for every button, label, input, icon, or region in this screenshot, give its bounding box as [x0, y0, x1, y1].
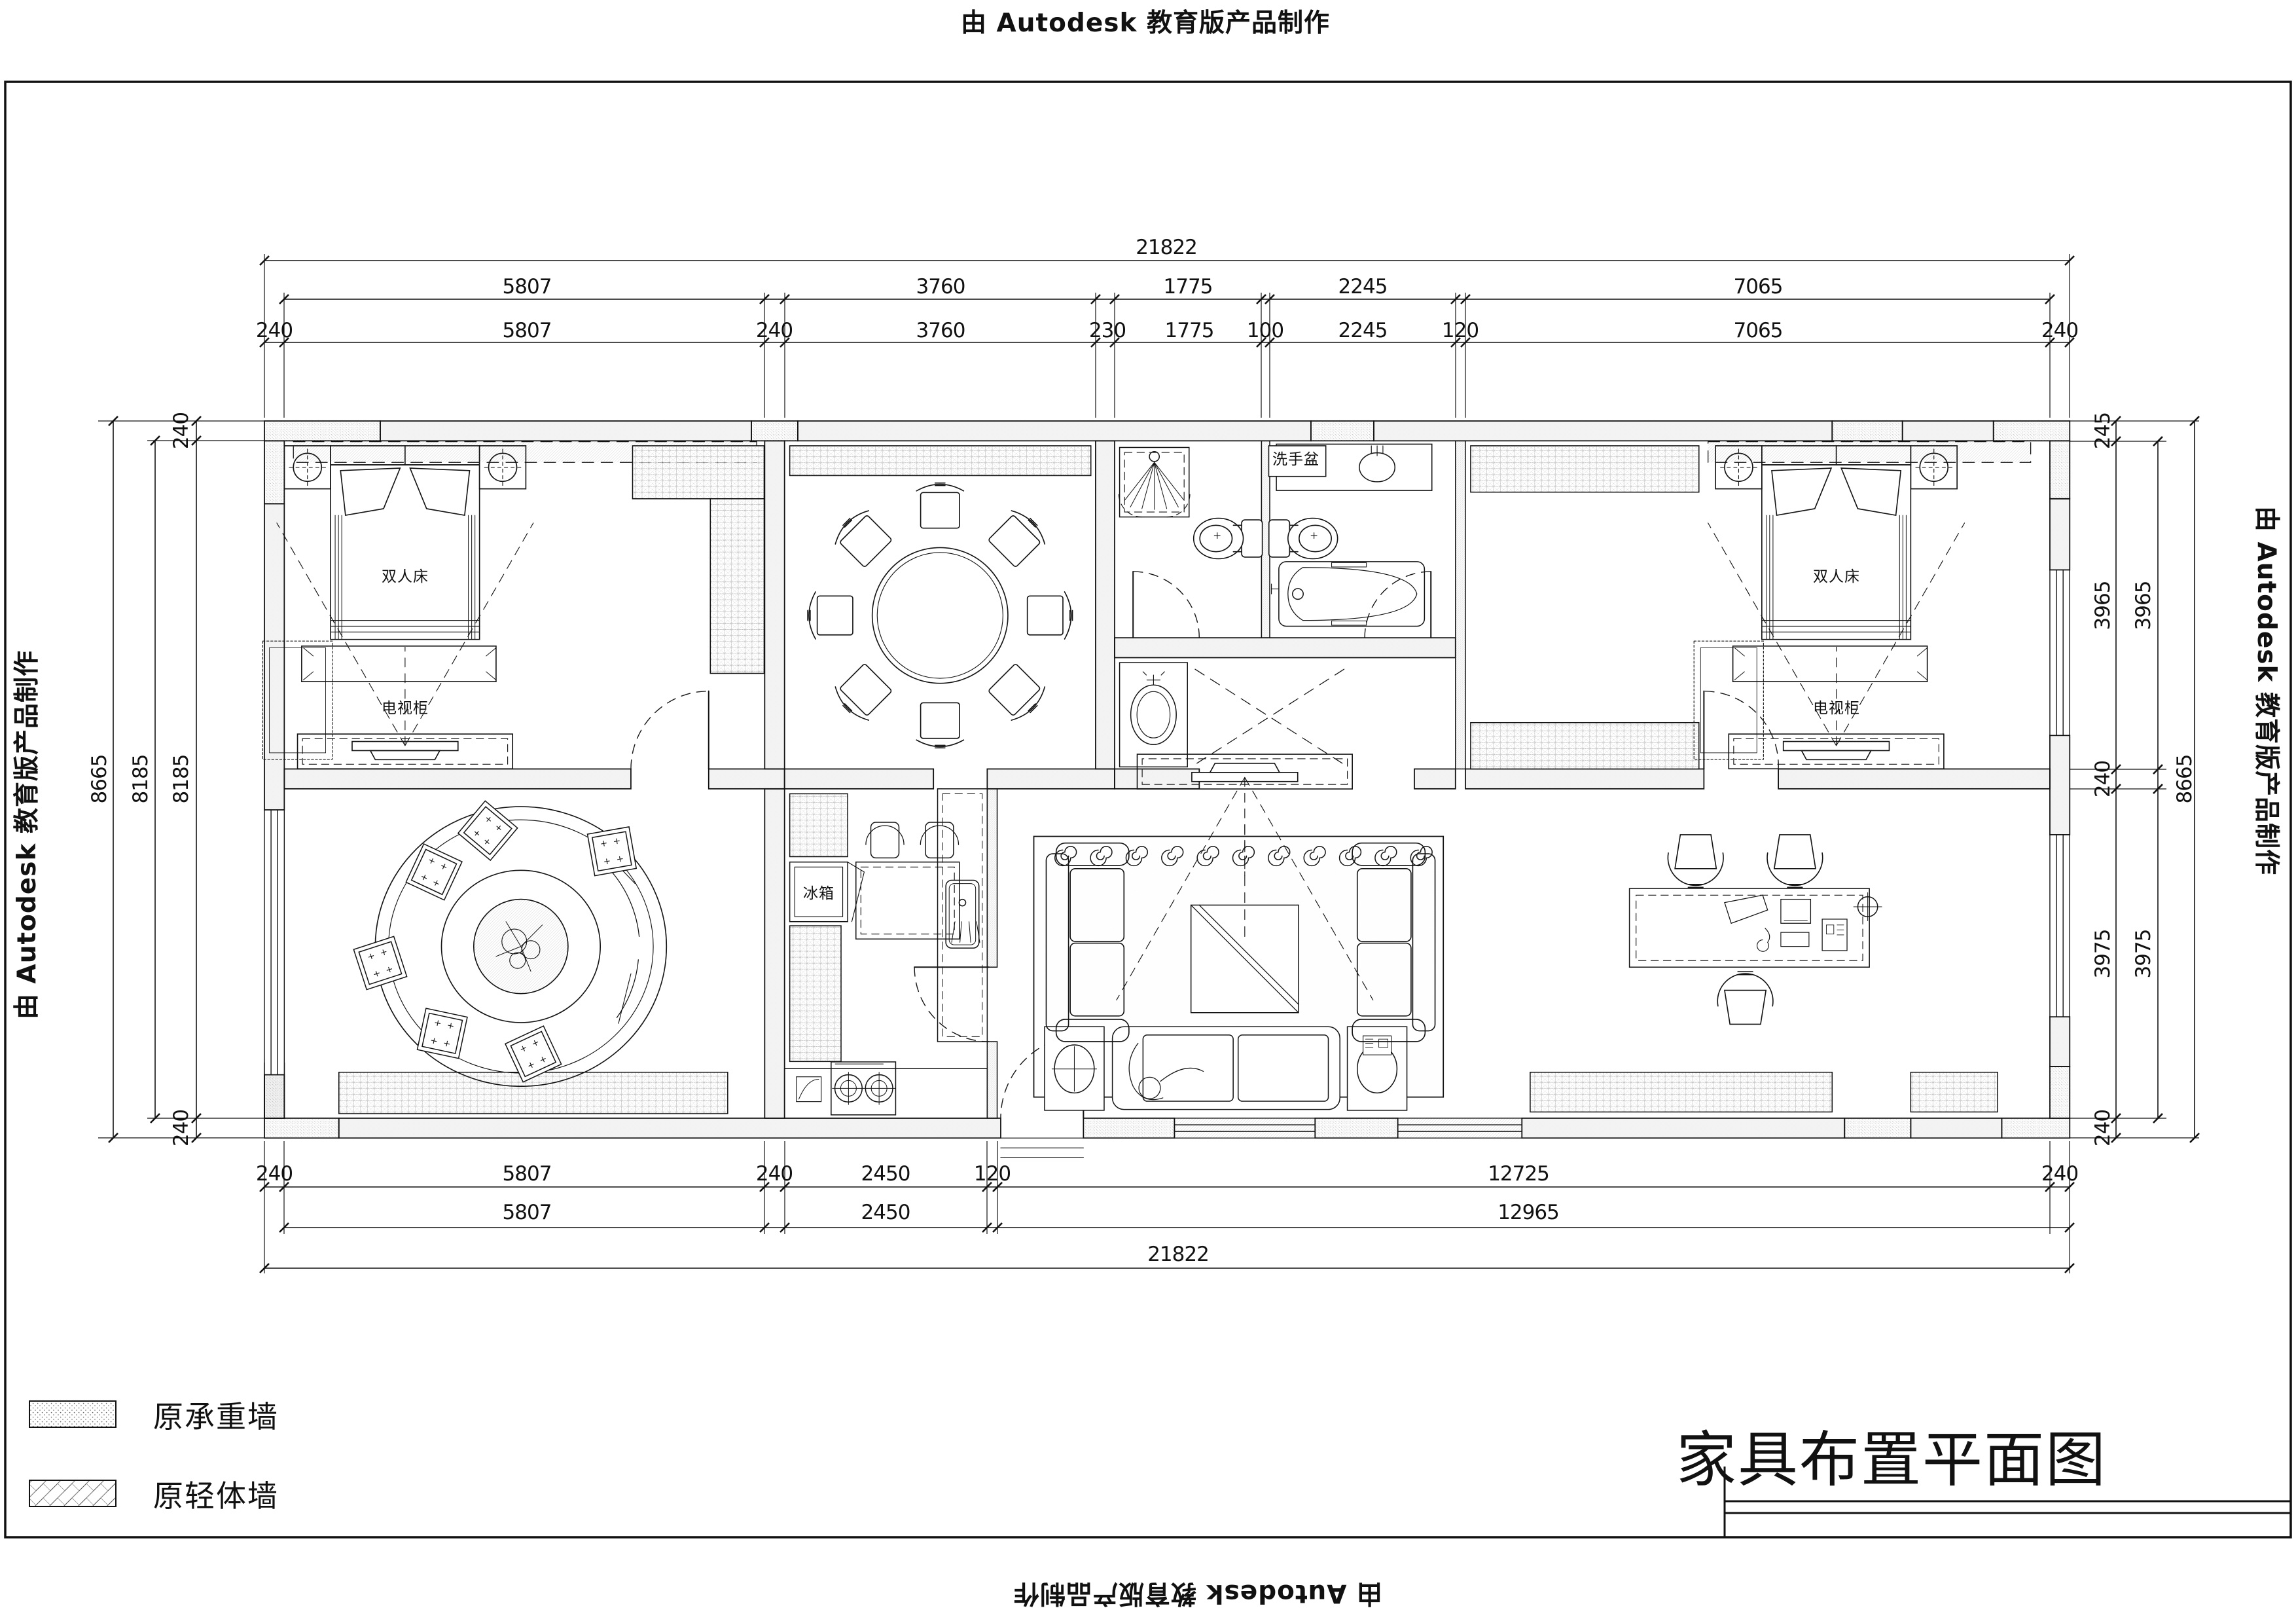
dimension-label: 240 — [2041, 1162, 2078, 1186]
edu-stamp-right: 由 Autodesk 教育版产品制作 — [2250, 506, 2287, 875]
dimension-label: 12965 — [1498, 1201, 1559, 1224]
room-label: 双人床 — [1813, 564, 1860, 586]
dimension-label: 120 — [974, 1162, 1011, 1186]
dimension-label: 3975 — [2091, 930, 2115, 979]
room-label: 电视柜 — [1813, 695, 1860, 718]
room-label: 双人床 — [382, 564, 429, 586]
edu-stamp-bottom: 由 Autodesk 教育版产品制作 — [1013, 1577, 1382, 1614]
dimension-label: 100 — [1247, 319, 1283, 342]
room-label: 电视柜 — [382, 695, 429, 718]
dimension-label: 240 — [170, 1110, 193, 1146]
dimension-label: 1775 — [1165, 319, 1214, 342]
dimension-label: 240 — [256, 319, 293, 342]
dimension-label: 1775 — [1164, 275, 1213, 299]
dimension-label: 3760 — [916, 275, 965, 299]
dimension-label: 3760 — [916, 319, 965, 342]
dimension-label: 5807 — [503, 1201, 552, 1224]
dimension-label: 240 — [756, 319, 793, 342]
dimension-label: 3965 — [2091, 581, 2115, 630]
dimension-label: 240 — [2041, 319, 2078, 342]
legend-swatches — [29, 1401, 116, 1506]
dimension-label: 240 — [756, 1162, 793, 1186]
edu-stamp-left: 由 Autodesk 教育版产品制作 — [7, 650, 43, 1019]
room-label: 洗手盆 — [1272, 447, 1319, 469]
dimension-label: 2245 — [1338, 275, 1388, 299]
dimension-label: 3975 — [2132, 930, 2155, 979]
dimension-label: 240 — [2091, 1110, 2115, 1146]
legend-label-load-bearing: 原承重墙 — [153, 1393, 279, 1436]
dimension-label: 8185 — [170, 755, 193, 804]
dimension-label: 5807 — [503, 275, 552, 299]
dimension-label: 245 — [2091, 412, 2115, 449]
dimension-label: 21822 — [1147, 1243, 1209, 1266]
dimension-label: 8185 — [129, 755, 152, 804]
legend-label-light-wall: 原轻体墙 — [153, 1472, 279, 1516]
dimension-label: 240 — [170, 412, 193, 449]
room-label: 冰箱 — [803, 881, 834, 903]
dimension-label: 240 — [2091, 761, 2115, 797]
dimension-label: 2450 — [861, 1201, 910, 1224]
dimension-label: 12725 — [1488, 1162, 1549, 1186]
dimension-label: 7065 — [1734, 275, 1783, 299]
dimension-label: 2450 — [861, 1162, 910, 1186]
dimension-label: 240 — [256, 1162, 293, 1186]
dimension-label: 8665 — [2173, 755, 2197, 804]
dimension-label: 7065 — [1734, 319, 1783, 342]
dimension-label: 230 — [1089, 319, 1126, 342]
dimension-label: 5807 — [503, 319, 552, 342]
edu-stamp-top: 由 Autodesk 教育版产品制作 — [961, 3, 1330, 39]
dimension-label: 8665 — [88, 755, 111, 804]
dimension-label: 5807 — [503, 1162, 552, 1186]
dimension-label: 120 — [1442, 319, 1479, 342]
cad-sheet: 由 Autodesk 教育版产品制作 由 Autodesk 教育版产品制作 由 … — [0, 0, 2296, 1623]
dimension-label: 21822 — [1136, 236, 1197, 259]
dimension-label: 2245 — [1338, 319, 1388, 342]
dimension-label: 3965 — [2132, 581, 2155, 630]
drawing-title: 家具布置平面图 — [1676, 1412, 2107, 1499]
